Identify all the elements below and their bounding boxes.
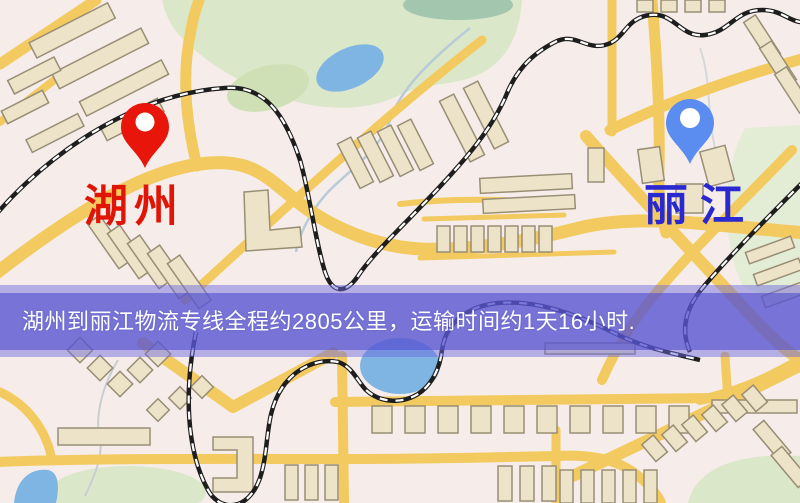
logistics-route-map-page: 湖州 丽江 湖州到丽江物流专线全程约2805公里，运输时间约1天16小时.	[0, 0, 800, 503]
origin-city-label: 湖州	[84, 182, 184, 231]
route-info-text: 湖州到丽江物流专线全程约2805公里，运输时间约1天16小时.	[22, 293, 792, 350]
destination-city-label: 丽江	[644, 181, 756, 230]
map-canvas[interactable]: 湖州 丽江	[0, 0, 800, 503]
